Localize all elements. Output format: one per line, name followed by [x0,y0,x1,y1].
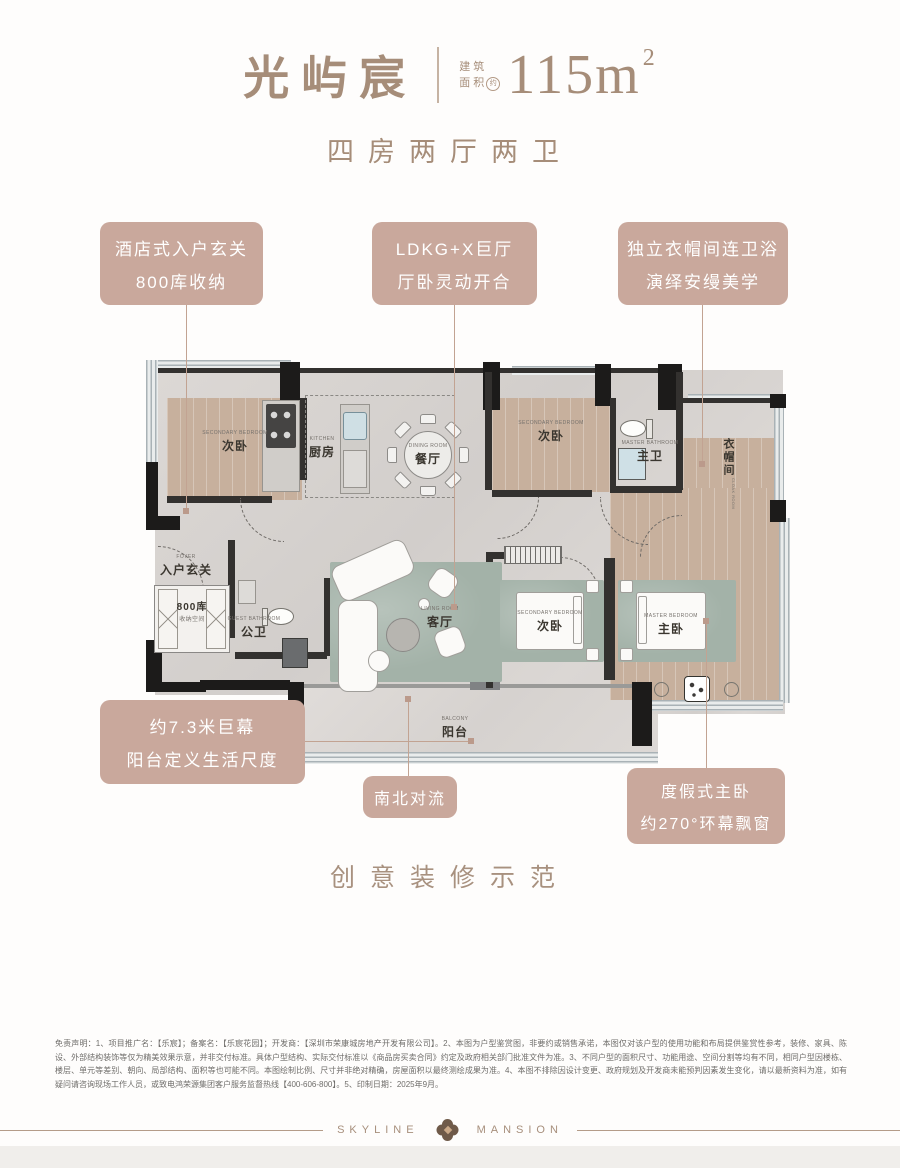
dining-chair [420,414,436,424]
wall [610,486,682,493]
window-top-left-v [146,360,158,465]
approx-badge: 约 [486,77,500,91]
connector-dot-master [703,618,709,624]
bottom-strip [0,1146,900,1168]
room-label-bedroom2: SECONDARY BEDROOM 次卧 [513,420,589,444]
room-label-kitchen: KITCHEN 厨房 [286,436,358,460]
washer-icon [724,682,739,697]
room-label-zh: 衣帽间 [720,438,736,477]
footer-rule-right [577,1130,900,1131]
storage-label-line1: 800库 [177,598,208,613]
wall [676,372,683,490]
room-label-en: MASTER BATHROOM [622,440,679,446]
toilet-tank [646,419,653,439]
room-label-zh: 公卫 [241,623,267,640]
wall-pier [146,516,180,530]
storage-label-line2: 收纳空间 [179,614,205,623]
title-divider [437,47,439,103]
room-label-master-bath: MASTER BATHROOM 主卫 [622,440,678,464]
room-label-foyer: FOYER 入户玄关 [146,554,226,578]
callout-foyer-line1: 酒店式入户玄关 [115,235,248,260]
area-superscript: 2 [643,45,657,71]
dining-chair [420,486,436,496]
tagline: 创意装修示范 [0,858,900,894]
wall-pier [770,394,786,408]
room-label-living: LIVING ROOM 客厅 [402,606,478,630]
sofa [338,600,378,692]
area-label: 建筑 面积 约 [459,59,487,92]
room-label-bedroom1: SECONDARY BEDROOM 次卧 [195,430,275,454]
connector-line-master [706,622,707,768]
room-label-guest-bath: GUEST BATHROOM 公卫 [228,616,280,640]
nightstand [586,648,599,661]
room-label-en: MASTER BEDROOM [644,613,698,619]
connector-line-balcony [305,741,469,742]
wall-pier [200,680,290,690]
washer-icon [654,682,669,697]
callout-ldkg-line2: 厅卧灵动开合 [398,268,512,293]
callout-foyer: 酒店式入户玄关 800库收纳 [100,222,263,305]
window-bottom-bay [652,700,783,711]
wall-pier [770,500,786,522]
nightstand [620,580,633,593]
pouf [368,650,390,672]
wall-pier [595,364,611,406]
footer-brand-left: SKYLINE [337,1124,418,1136]
nightstand [586,580,599,593]
area-label-line1: 建筑 [459,59,487,76]
project-name: 光屿宸 [243,42,417,108]
wall-pier [146,682,206,692]
wardrobe [504,546,562,564]
connector-line-foyer [186,305,187,510]
room-label-en: SECONDARY BEDROOM [518,420,584,426]
room-label-balcony: BALCONY 阳台 [417,716,493,740]
room-label-en: GUEST BATHROOM [228,616,281,622]
wall [604,558,615,680]
footer-rule-left [0,1130,323,1131]
connector-dot-ldkg [451,604,457,610]
shower-icon [282,638,308,668]
connector-dot-foyer [183,508,189,514]
room-label-zh: 餐厅 [415,450,441,467]
room-label-zh: 次卧 [538,427,564,444]
callout-cloakroom: 独立衣帽间连卫浴 演绎安缦美学 [618,222,788,305]
wall [610,398,616,490]
room-label-zh: 主卧 [658,620,684,637]
area-label-line2: 面积 [459,75,487,92]
connector-dot-cloakroom [699,461,705,467]
callout-airflow: 南北对流 [363,776,457,818]
wall [485,372,492,490]
balcony-railing [300,752,658,764]
wall [296,368,488,373]
connector-line-airflow [408,700,409,776]
callout-master: 度假式主卧 约270°环幕飘窗 [627,768,785,844]
footer-brand-right: MANSION [477,1124,563,1136]
area-value: 115m2 [507,43,656,107]
room-label-master-bedroom: MASTER BEDROOM 主卧 [633,613,709,637]
bathroom-sink [238,580,256,604]
room-label-zh: 主卫 [637,447,663,464]
room-label-zh: 次卧 [537,617,563,634]
callout-balcony-line2: 阳台定义生活尺度 [127,746,279,771]
wall [492,490,592,497]
connector-dot-balcony [468,738,474,744]
room-label-bedroom3: SECONDARY BEDROOM 次卧 [512,610,588,634]
storage-label: 800库 收纳空间 [156,598,228,623]
window-right-bay [779,518,790,703]
wall [235,652,327,659]
callout-master-line2: 约270°环幕飘窗 [640,810,771,834]
wall-pier [146,462,158,520]
connector-line-cloakroom [702,305,703,463]
callout-airflow-line1: 南北对流 [374,785,446,809]
room-label-zh: 厨房 [309,443,335,460]
wall-pier [632,682,652,746]
room-label-zh: 客厅 [427,613,453,630]
quatrefoil-logo-icon [437,1119,459,1141]
callout-master-line1: 度假式主卧 [661,778,751,802]
room-label-en: SECONDARY BEDROOM [517,610,583,616]
room-label-en: BALCONY [442,716,469,722]
room-label-en: FOYER [176,554,195,560]
callout-cloakroom-line2: 演绎安缦美学 [646,268,760,293]
room-label-en: CLOAK ROOM [720,478,736,509]
area-number: 115m [507,44,640,106]
callout-balcony-line1: 约7.3米巨幕 [150,713,256,738]
callout-ldkg-line1: LDKG+X巨厅 [396,235,514,260]
connector-dot-airflow [405,696,411,702]
callout-ldkg: LDKG+X巨厅 厅卧灵动开合 [372,222,537,305]
toilet-icon [620,420,646,437]
room-label-zh: 阳台 [442,723,468,740]
nightstand [620,648,633,661]
poster-page: 光屿宸 建筑 面积 约 115m2 四房两厅两卫 酒店式入户玄关 800库收纳 … [0,0,900,1168]
room-label-zh: 入户玄关 [160,561,212,578]
footer: SKYLINE MANSION [0,1119,900,1141]
floor-bedroom2 [492,398,610,492]
room-label-en: SECONDARY BEDROOM [202,430,268,436]
disclaimer-text: 免责声明：1、项目推广名：【乐宸】；备案名：【乐宸花园】；开发商：【深圳市荣康城… [55,1037,847,1091]
layout-subtitle: 四房两厅两卫 [0,130,900,169]
room-label-zh: 次卧 [222,437,248,454]
connector-line-ldkg [454,305,455,606]
room-label-en: KITCHEN [310,436,335,442]
room-label-en: DINING ROOM [409,443,448,449]
callout-cloakroom-line1: 独立衣帽间连卫浴 [627,235,779,260]
header: 光屿宸 建筑 面积 约 115m2 [0,42,900,108]
wall [498,368,600,373]
room-label-cloakroom: 衣帽间 CLOAK ROOM [720,438,736,510]
callout-balcony: 约7.3米巨幕 阳台定义生活尺度 [100,700,305,784]
callout-foyer-line2: 800库收纳 [136,268,227,293]
wall [158,368,286,373]
